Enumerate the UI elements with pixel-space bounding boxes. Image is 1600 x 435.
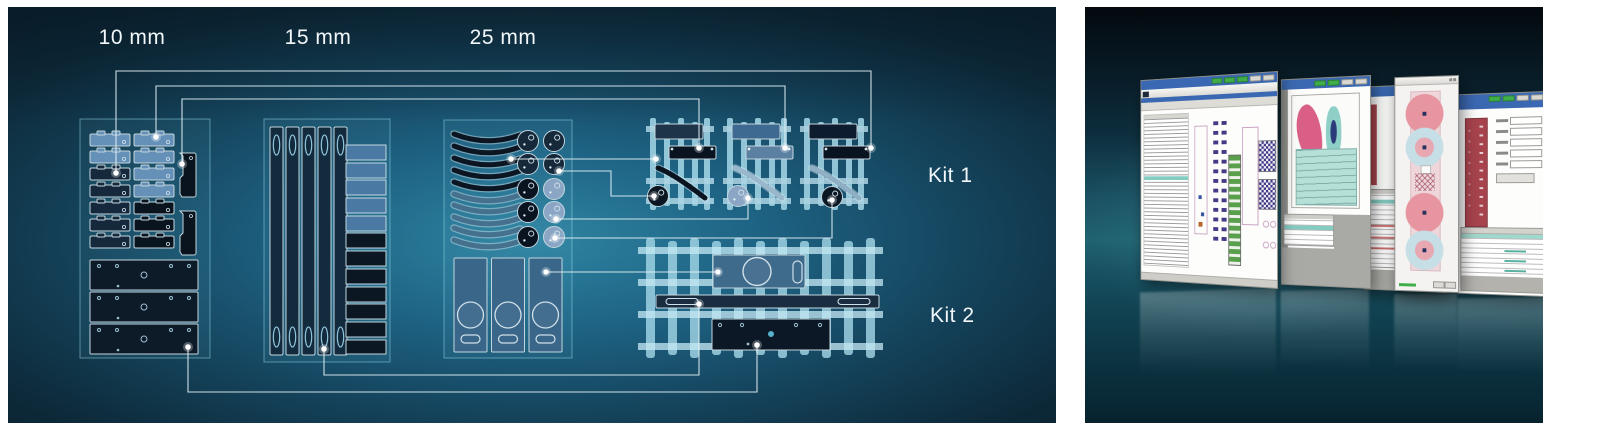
list-header bbox=[1144, 113, 1188, 119]
fixture-column bbox=[1221, 121, 1227, 243]
window-reflection bbox=[1394, 293, 1457, 388]
toolbar-button[interactable] bbox=[1517, 95, 1529, 101]
parameters-table-window bbox=[1458, 91, 1543, 297]
kit2-blue-plate bbox=[713, 255, 805, 288]
kit2-dark-plate bbox=[712, 319, 830, 350]
dialog-button[interactable] bbox=[1445, 282, 1457, 289]
toolbar-button[interactable] bbox=[1341, 79, 1353, 85]
parts-list[interactable] bbox=[1144, 112, 1189, 268]
toolbar-button[interactable] bbox=[1355, 78, 1367, 85]
toolbar-button[interactable] bbox=[1314, 80, 1326, 86]
arc-disc-parts-25mm bbox=[454, 131, 565, 353]
window-reflection bbox=[1457, 297, 1543, 392]
hole-ring bbox=[1270, 241, 1276, 248]
orange-block bbox=[1198, 222, 1202, 227]
kit-diagram-panel: 10 mm 15 mm 25 mm Kit 1 Kit 2 bbox=[8, 7, 1056, 423]
toolbar-button[interactable] bbox=[1503, 95, 1515, 101]
input-field[interactable] bbox=[1510, 160, 1542, 168]
toolbar-button[interactable] bbox=[1250, 75, 1261, 82]
results-table[interactable] bbox=[1460, 227, 1543, 294]
toolbar-button[interactable] bbox=[1328, 79, 1340, 85]
selected-row[interactable] bbox=[1144, 176, 1188, 180]
kit1-label: Kit 1 bbox=[928, 164, 973, 187]
checker-grid bbox=[1258, 140, 1276, 172]
base-plate bbox=[90, 260, 198, 290]
field-label bbox=[1496, 152, 1508, 155]
slot-marks bbox=[1480, 126, 1484, 220]
data-table[interactable] bbox=[1283, 214, 1333, 247]
contour-panel bbox=[1296, 149, 1357, 206]
toolbar-button[interactable] bbox=[1224, 77, 1235, 84]
input-field[interactable] bbox=[1510, 150, 1542, 158]
green-strip bbox=[1228, 155, 1241, 266]
pink-disc bbox=[1406, 193, 1444, 233]
dialog-button[interactable] bbox=[1433, 281, 1444, 288]
input-field[interactable] bbox=[1510, 117, 1542, 126]
size-label-25mm: 25 mm bbox=[470, 26, 537, 49]
hole-marks bbox=[1468, 130, 1470, 215]
empty-area bbox=[1334, 215, 1370, 250]
outline-rect bbox=[1242, 127, 1258, 226]
slide-panel bbox=[454, 258, 487, 352]
cad-parts-list-window bbox=[1140, 71, 1278, 289]
chip-layout-dialog bbox=[1394, 75, 1459, 293]
kit2-assembly bbox=[638, 238, 883, 358]
teal-cell-text bbox=[1504, 250, 1526, 252]
shape-editor-window bbox=[1281, 75, 1371, 289]
field-label bbox=[1496, 119, 1508, 122]
empty-area bbox=[1461, 275, 1543, 293]
parameter-form bbox=[1496, 117, 1542, 196]
drawing-canvas[interactable] bbox=[1291, 92, 1360, 209]
chip-strip bbox=[1410, 91, 1440, 272]
fixture-column bbox=[1213, 121, 1218, 242]
software-screens-panel bbox=[1085, 7, 1543, 423]
slide-panel bbox=[492, 258, 525, 352]
maroon-part-panel bbox=[1465, 118, 1488, 227]
hole-ring bbox=[1262, 220, 1268, 227]
toolbar-button[interactable] bbox=[1212, 78, 1223, 84]
apply-button[interactable] bbox=[1496, 174, 1535, 184]
checker-grid bbox=[1258, 179, 1276, 211]
blue-disc bbox=[1406, 127, 1444, 167]
status-text-green bbox=[1399, 283, 1416, 286]
blue-disc bbox=[1406, 230, 1444, 270]
window-reflection bbox=[1140, 288, 1276, 398]
size-label-15mm: 15 mm bbox=[285, 26, 352, 49]
toolbar-button[interactable] bbox=[1237, 76, 1248, 83]
selected-row[interactable] bbox=[1284, 225, 1333, 230]
app-logo-icon bbox=[1143, 91, 1149, 97]
size-label-10mm: 10 mm bbox=[99, 26, 166, 49]
window-reflection bbox=[1281, 289, 1369, 389]
table-header bbox=[1284, 215, 1333, 220]
base-plate bbox=[90, 324, 198, 354]
kit2-long-bar bbox=[656, 295, 879, 308]
figure-page: 10 mm 15 mm 25 mm Kit 1 Kit 2 bbox=[0, 0, 1600, 435]
toolbar-button[interactable] bbox=[1489, 96, 1501, 102]
field-label bbox=[1496, 130, 1508, 133]
base-plate bbox=[90, 292, 198, 322]
outline-rect bbox=[1194, 125, 1208, 234]
blue-block bbox=[1201, 212, 1204, 216]
input-field[interactable] bbox=[1510, 128, 1542, 137]
input-field[interactable] bbox=[1510, 139, 1542, 148]
blue-block bbox=[1198, 195, 1201, 199]
field-label bbox=[1496, 163, 1508, 166]
hole-ring bbox=[1270, 220, 1276, 227]
toolbar-button[interactable] bbox=[1531, 94, 1543, 100]
empty-area bbox=[1282, 247, 1370, 288]
hole-ring bbox=[1262, 241, 1268, 248]
toolbar-button[interactable] bbox=[1263, 74, 1275, 81]
kit2-label: Kit 2 bbox=[930, 304, 975, 327]
crosshatch-section bbox=[1415, 173, 1435, 191]
minimize-icon[interactable] bbox=[1449, 78, 1452, 81]
close-icon[interactable] bbox=[1453, 78, 1456, 81]
field-label bbox=[1496, 141, 1508, 144]
